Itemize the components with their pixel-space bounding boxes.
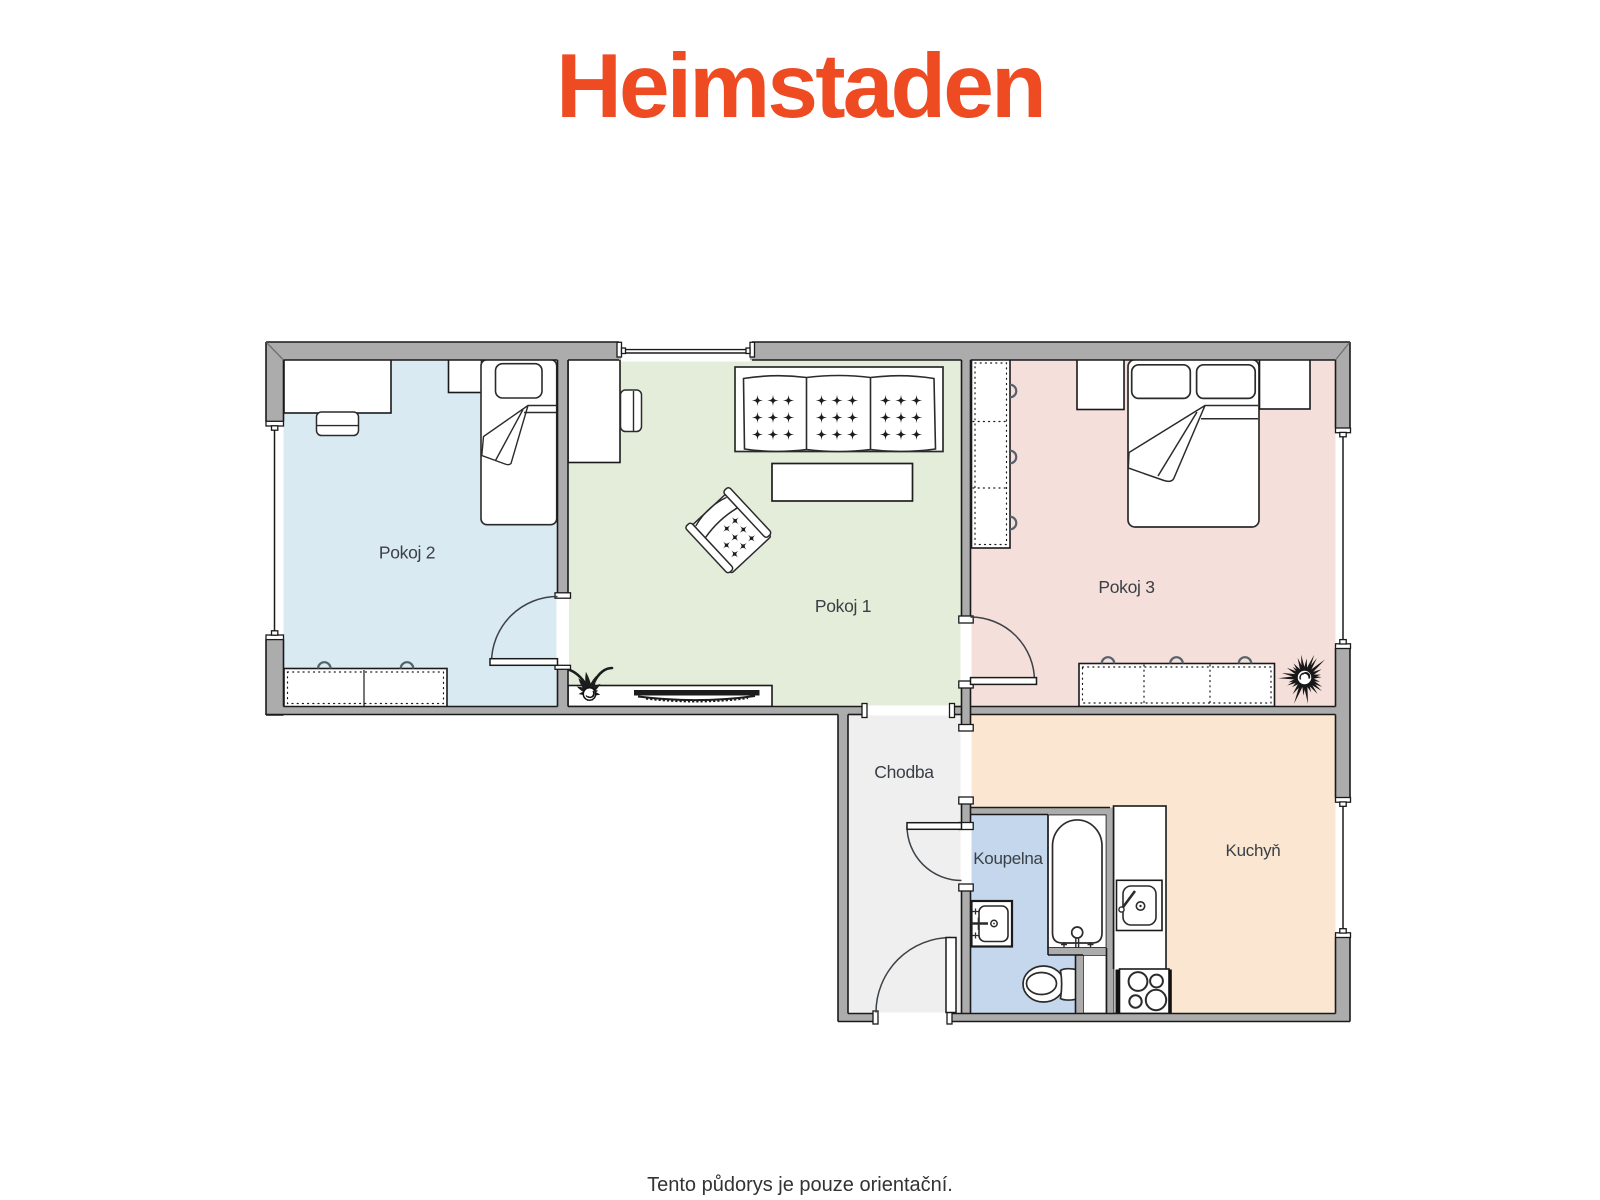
svg-text:Pokoj 1: Pokoj 1 bbox=[815, 596, 871, 616]
svg-text:Tento půdorys je pouze orienta: Tento půdorys je pouze orientační. bbox=[647, 1174, 953, 1196]
svg-text:Pokoj 3: Pokoj 3 bbox=[1098, 577, 1154, 597]
svg-text:Chodba: Chodba bbox=[874, 762, 934, 782]
svg-text:Pokoj 2: Pokoj 2 bbox=[379, 543, 435, 563]
svg-text:Koupelna: Koupelna bbox=[973, 849, 1043, 868]
svg-text:Kuchyň: Kuchyň bbox=[1226, 841, 1281, 860]
svg-text:Heimstaden: Heimstaden bbox=[556, 36, 1044, 137]
